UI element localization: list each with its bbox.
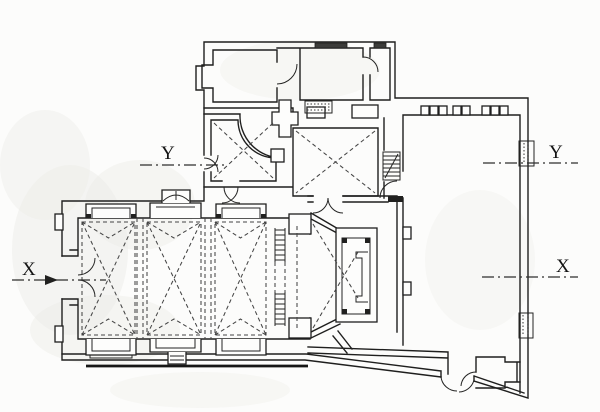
chapel-jamb (86, 214, 91, 218)
floor-plan-drawing: X Y Y X (0, 0, 600, 412)
window-frame (519, 313, 533, 338)
north-side-door-leaves (204, 155, 218, 172)
arc-end-pier (271, 149, 284, 162)
crossing-right-vault (296, 131, 375, 193)
chancel-arch-pier (289, 318, 311, 338)
nave-link-door-leaves (222, 187, 240, 203)
altar-corner-block (365, 309, 370, 314)
pilaster-mark (482, 106, 490, 115)
vault-pilaster (352, 105, 378, 118)
southeast-door-leaves (441, 377, 474, 392)
stair (383, 152, 400, 180)
east-buttress (403, 227, 411, 239)
chapel-south-2-step (168, 352, 186, 364)
altar-corner-block (342, 238, 347, 243)
chancel-arch-pier (289, 214, 311, 234)
cruciform-pier (272, 100, 298, 137)
chapel-jamb (261, 214, 266, 218)
chapel-north-1 (86, 204, 136, 218)
altar-corner-block (342, 309, 347, 314)
screen-strip (275, 228, 285, 326)
chapel-south-2 (150, 339, 201, 352)
wall-window-hatch-upper (519, 141, 534, 166)
east-buttress (403, 282, 411, 295)
pilaster-mark (462, 106, 470, 115)
altar-corner-block (365, 238, 370, 243)
chapel-jamb (216, 214, 221, 218)
crossing-left-vault (214, 123, 273, 178)
pilaster-mark (500, 106, 508, 115)
smudge-blob (425, 190, 535, 330)
nave-bay-3-vault (215, 222, 266, 335)
screen-rails (275, 228, 285, 326)
west-buttress (55, 214, 63, 230)
scan-smudges (0, 40, 535, 408)
stair-direction-line (385, 154, 398, 178)
chapel-jamb (131, 214, 136, 218)
wall-hatch-strip (374, 43, 386, 48)
screen-dashed-gap (275, 262, 285, 292)
west-buttress (55, 326, 63, 342)
pilaster-mark (439, 106, 447, 115)
pilaster-mark (453, 106, 461, 115)
chapel-north-3 (216, 204, 266, 218)
pilaster-mark (430, 106, 438, 115)
section-label-y-left: Y (161, 143, 175, 164)
window-hatch-lines (523, 315, 528, 336)
chapel-south-1 (86, 339, 136, 355)
pilaster-mark (421, 106, 429, 115)
smudge-blob (110, 372, 290, 408)
section-label-y-right: Y (549, 142, 563, 163)
crossing-south-door-leaves (313, 198, 343, 213)
smudge-blob (0, 110, 90, 220)
chapel-south-3 (216, 339, 266, 355)
floor-plan-page: X Y Y X (0, 0, 600, 412)
solid-wall-stub (388, 196, 403, 202)
wall-window-hatch-lower (519, 313, 533, 338)
chapel-north-2 (150, 203, 201, 218)
pilaster-squares (421, 106, 508, 115)
pilaster-mark (491, 106, 499, 115)
wall-hatch-strip (315, 43, 347, 48)
section-label-x-left: X (22, 259, 36, 280)
section-label-x-right: X (556, 256, 570, 277)
window-frame (519, 141, 534, 166)
